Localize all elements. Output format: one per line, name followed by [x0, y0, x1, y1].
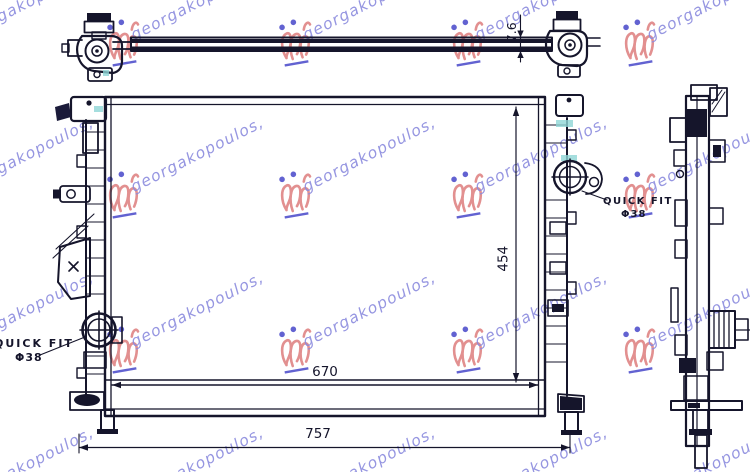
right-tank	[545, 95, 602, 435]
catalog-image: georgakopoulos, georgakopoulos,	[0, 0, 750, 472]
top-support-bar	[62, 11, 600, 81]
side-quick-fit-connector	[709, 311, 750, 348]
radiator-side-view	[670, 85, 750, 468]
mount-flag	[55, 103, 71, 121]
dim-label-7-6: 7.6	[506, 14, 519, 50]
dimension-core-width	[112, 382, 538, 388]
radiator-front-view	[40, 95, 607, 453]
dimension-core-height	[513, 107, 519, 382]
dim-label-757: 757	[296, 428, 340, 442]
quick-fit-label-left: QUICK FIT	[0, 338, 74, 349]
quick-fit-port-right	[552, 159, 602, 195]
radiator-technical-drawing	[0, 0, 750, 472]
quick-fit-label-right: QUICK FIT	[603, 197, 673, 207]
top-bar-left-bracket	[62, 13, 131, 81]
quick-fit-diameter-right: Φ38	[621, 210, 646, 220]
top-bar-right-bracket	[546, 11, 600, 77]
dim-label-670: 670	[295, 366, 355, 380]
dim-label-454: 454	[497, 239, 511, 279]
quick-fit-diameter-left: Φ38	[15, 352, 43, 363]
